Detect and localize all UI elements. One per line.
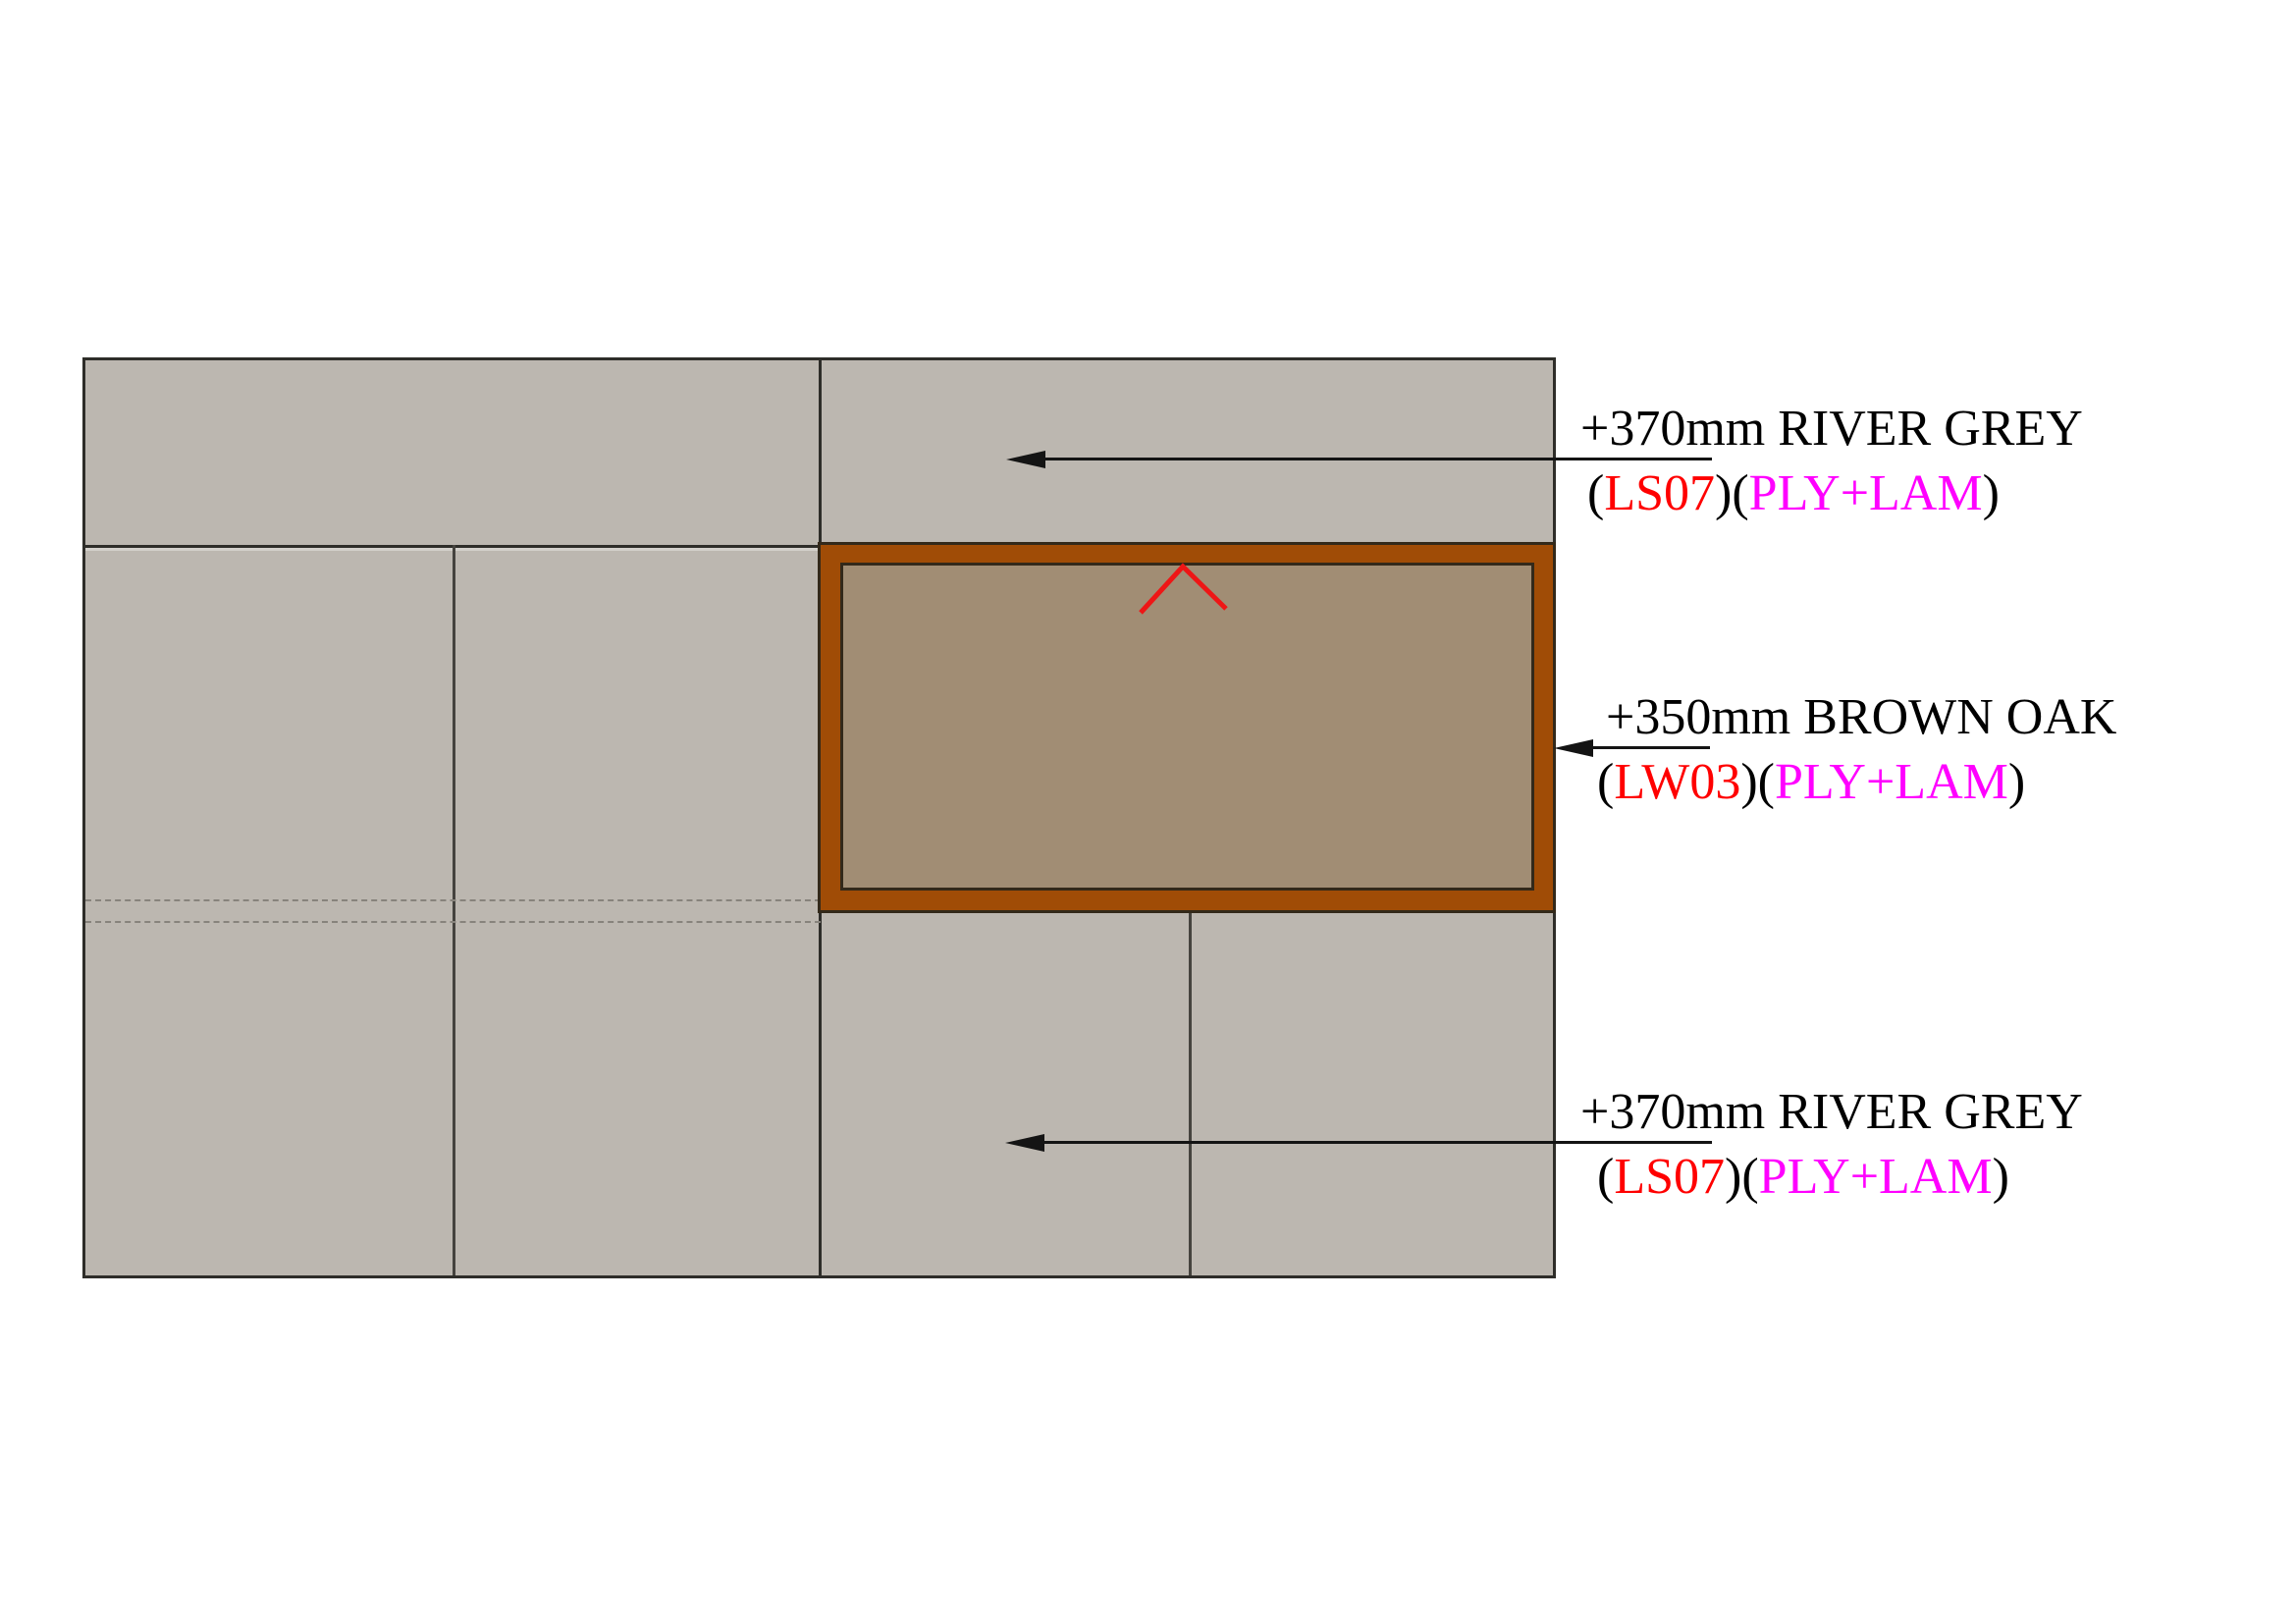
annotation-bottom-title: +370mm RIVER GREY: [1580, 1084, 2083, 1140]
dashed-line-upper: [85, 899, 821, 901]
paren: )(: [1740, 754, 1775, 810]
annotation-top-title: +370mm RIVER GREY: [1580, 401, 2083, 457]
paren: (: [1587, 465, 1604, 521]
bottom-right-panel-a-river-grey: [821, 913, 1190, 1275]
finish-code: LS07: [1614, 1149, 1725, 1205]
paren: (: [1597, 754, 1614, 810]
dashed-line-lower: [85, 921, 821, 923]
seam-left-doors: [453, 545, 455, 1275]
seam-bottom-right-doors: [1189, 913, 1192, 1275]
annotation-bottom-spec: (LS07)(PLY+LAM): [1597, 1145, 2083, 1210]
left-door-panel-river-grey: [85, 545, 454, 1275]
material-code: PLY+LAM: [1775, 754, 2008, 810]
top-panel-left-river-grey: [85, 360, 821, 545]
center-door-panel-river-grey: [454, 545, 821, 1275]
drawing-sheet: +370mm RIVER GREY (LS07)(PLY+LAM) +350mm…: [0, 0, 2296, 1623]
annotation-middle-title: +350mm BROWN OAK: [1606, 689, 2116, 745]
annotation-top-spec: (LS07)(PLY+LAM): [1587, 461, 2083, 526]
paren: ): [1993, 1149, 2009, 1205]
bottom-right-panel-b-river-grey: [1190, 913, 1553, 1275]
finish-code: LW03: [1614, 754, 1740, 810]
annotation-middle-spec: (LW03)(PLY+LAM): [1597, 750, 2116, 815]
paren: (: [1597, 1149, 1614, 1205]
material-code: PLY+LAM: [1749, 465, 1983, 521]
annotation-bottom-river-grey: +370mm RIVER GREY (LS07)(PLY+LAM): [1580, 1080, 2083, 1210]
drawing-inner: [85, 360, 1553, 1275]
paren: )(: [1715, 465, 1749, 521]
annotation-middle-brown-oak: +350mm BROWN OAK (LW03)(PLY+LAM): [1606, 685, 2116, 815]
annotation-top-river-grey: +370mm RIVER GREY (LS07)(PLY+LAM): [1580, 397, 2083, 526]
panel-edge-highlight: [85, 548, 818, 551]
paren: )(: [1725, 1149, 1759, 1205]
brown-oak-frame: [818, 542, 1556, 913]
paren: ): [1983, 465, 2000, 521]
finish-code: LS07: [1604, 465, 1715, 521]
paren: ): [2008, 754, 2025, 810]
material-code: PLY+LAM: [1759, 1149, 1993, 1205]
brown-oak-inner-panel: [840, 563, 1534, 891]
top-panel-right-river-grey: [821, 360, 1553, 545]
